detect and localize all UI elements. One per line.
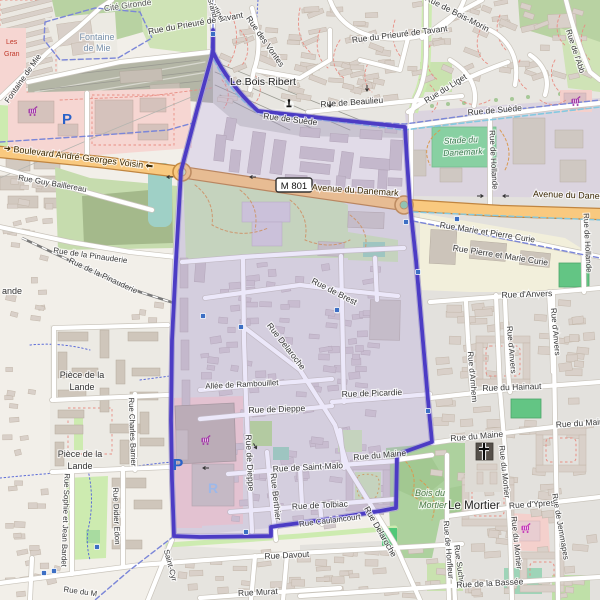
- svg-text:Lande: Lande: [69, 382, 94, 392]
- svg-text:Rue de Dieppe: Rue de Dieppe: [248, 403, 305, 415]
- svg-text:Le Mortier: Le Mortier: [448, 500, 500, 512]
- svg-text:M 801: M 801: [281, 181, 307, 192]
- svg-text:Mortier: Mortier: [419, 500, 448, 510]
- svg-text:Les: Les: [6, 39, 18, 46]
- svg-text:Danemark: Danemark: [443, 146, 483, 158]
- svg-text:Pièce de la: Pièce de la: [60, 370, 105, 380]
- svg-text:Rue d'Anvers: Rue d'Anvers: [501, 288, 552, 300]
- svg-text:P: P: [173, 457, 184, 474]
- svg-text:Rue de Picardie: Rue de Picardie: [341, 387, 402, 399]
- svg-text:ande: ande: [2, 286, 22, 296]
- svg-text:Rue Murat: Rue Murat: [238, 586, 279, 598]
- svg-text:R: R: [208, 480, 218, 496]
- svg-text:Rue du Hainaut: Rue du Hainaut: [482, 381, 542, 393]
- svg-text:Fontaine: Fontaine: [79, 32, 114, 42]
- svg-text:Bois du: Bois du: [415, 488, 445, 498]
- svg-text:Stade du: Stade du: [444, 134, 479, 146]
- svg-text:Lande: Lande: [67, 461, 92, 471]
- svg-text:Gran: Gran: [4, 51, 20, 58]
- svg-text:Le Bois Ribert: Le Bois Ribert: [230, 76, 296, 88]
- svg-text:de Mie: de Mie: [83, 43, 110, 53]
- svg-text:Pièce de la: Pièce de la: [58, 449, 103, 459]
- svg-text:P: P: [62, 111, 72, 128]
